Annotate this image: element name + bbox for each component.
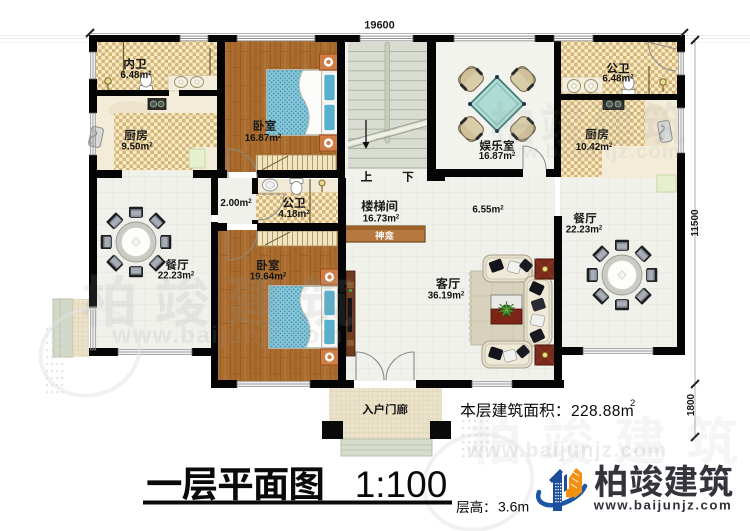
svg-text:www.baijunjz.com: www.baijunjz.com [111,322,343,349]
svg-text:3.6m: 3.6m [498,499,529,515]
svg-text:9.50m2: 9.50m2 [121,142,153,153]
svg-text:2: 2 [630,398,635,409]
svg-text:16.73m2: 16.73m2 [363,214,400,225]
svg-text:36.19m2: 36.19m2 [428,291,465,302]
svg-text:www.baijunjz.com: www.baijunjz.com [593,498,733,513]
svg-text:www.baijunjz.com: www.baijunjz.com [488,141,681,163]
svg-text:4.18m2: 4.18m2 [278,209,310,220]
svg-text:22.23m2: 22.23m2 [566,225,603,236]
svg-text:6.55m2: 6.55m2 [472,205,504,216]
svg-text:www.baijunjz.com: www.baijunjz.com [466,439,667,462]
svg-text:2.00m2: 2.00m2 [220,198,252,209]
svg-text:228.88m: 228.88m [571,403,634,420]
svg-text:16.87m2: 16.87m2 [245,133,282,144]
svg-text:1:100: 1:100 [355,464,448,505]
svg-text:11500: 11500 [690,209,701,237]
svg-text:1800: 1800 [686,393,697,416]
svg-text:19600: 19600 [364,20,395,32]
svg-text:6.48m2: 6.48m2 [602,74,634,85]
svg-text:6.48m2: 6.48m2 [120,70,152,81]
